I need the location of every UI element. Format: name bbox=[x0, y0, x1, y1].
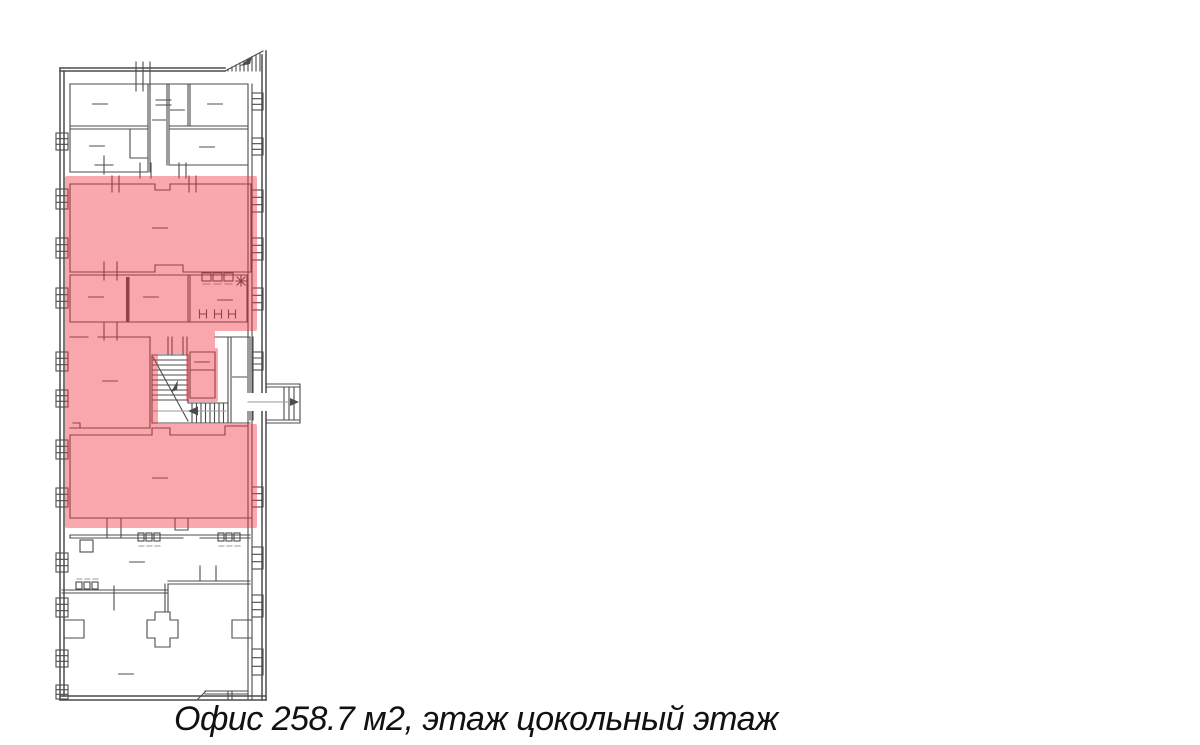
wall-pier-icon bbox=[64, 620, 84, 638]
window-icon bbox=[56, 598, 68, 617]
cross-column-icon bbox=[147, 612, 178, 647]
wall-pier-icon bbox=[232, 620, 252, 638]
window-icon bbox=[56, 553, 68, 572]
entrance-ramp bbox=[225, 51, 263, 71]
door-cross-icon bbox=[95, 156, 113, 174]
window-icon bbox=[56, 133, 68, 150]
bottom-rooms bbox=[62, 533, 252, 699]
stairs-direction-arrow-icon bbox=[188, 407, 198, 416]
window-icon bbox=[56, 650, 68, 667]
entry-steps-icon bbox=[198, 691, 248, 699]
shaft-box-icon bbox=[80, 540, 93, 552]
floor-plan-drawing bbox=[0, 0, 1200, 745]
vent-icon bbox=[76, 579, 98, 589]
plan-caption: Офис 258.7 м2, этаж цокольный этаж bbox=[174, 700, 778, 739]
top-rooms bbox=[70, 84, 248, 178]
structural-columns bbox=[64, 612, 252, 647]
floor-plan-canvas: Офис 258.7 м2, этаж цокольный этаж bbox=[0, 0, 1200, 745]
window-icon bbox=[56, 685, 68, 699]
exit-porch bbox=[246, 384, 300, 423]
